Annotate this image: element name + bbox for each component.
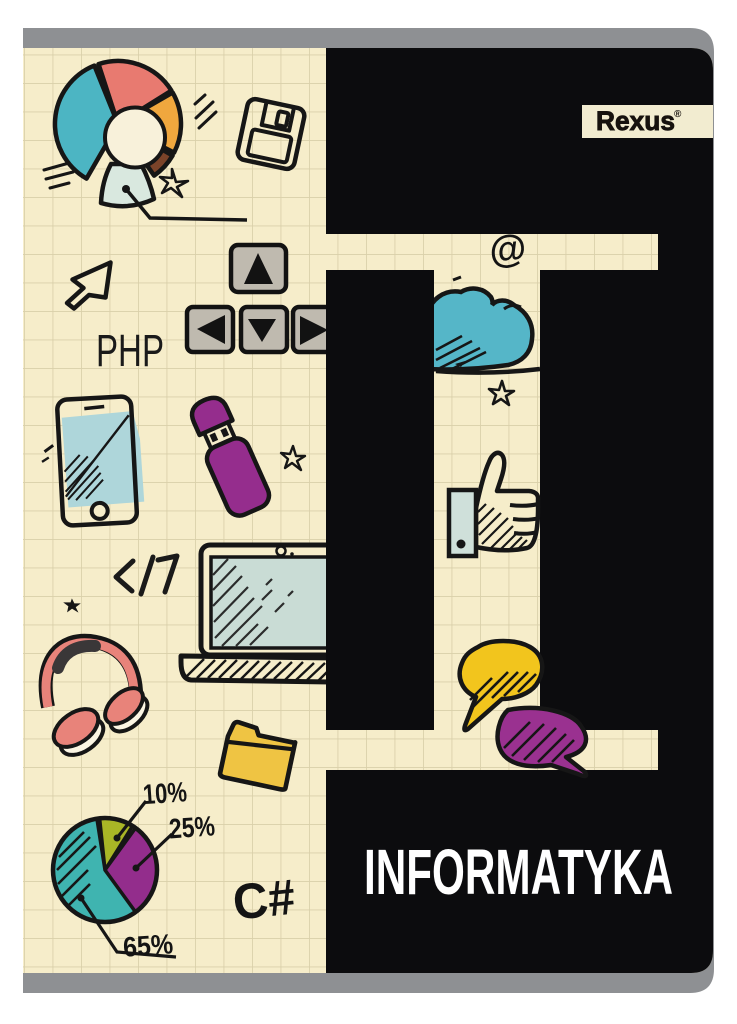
svg-text:®: ® xyxy=(674,109,682,120)
svg-text:65%: 65% xyxy=(122,928,174,962)
svg-text:C#: C# xyxy=(230,868,298,930)
svg-text:10%: 10% xyxy=(142,776,188,810)
svg-text:Rexus: Rexus xyxy=(596,106,675,136)
svg-text:@: @ xyxy=(487,227,528,273)
svg-text:PHP: PHP xyxy=(96,325,164,376)
svg-text:INFORMATYKA: INFORMATYKA xyxy=(364,836,673,908)
svg-text:25%: 25% xyxy=(168,810,216,844)
